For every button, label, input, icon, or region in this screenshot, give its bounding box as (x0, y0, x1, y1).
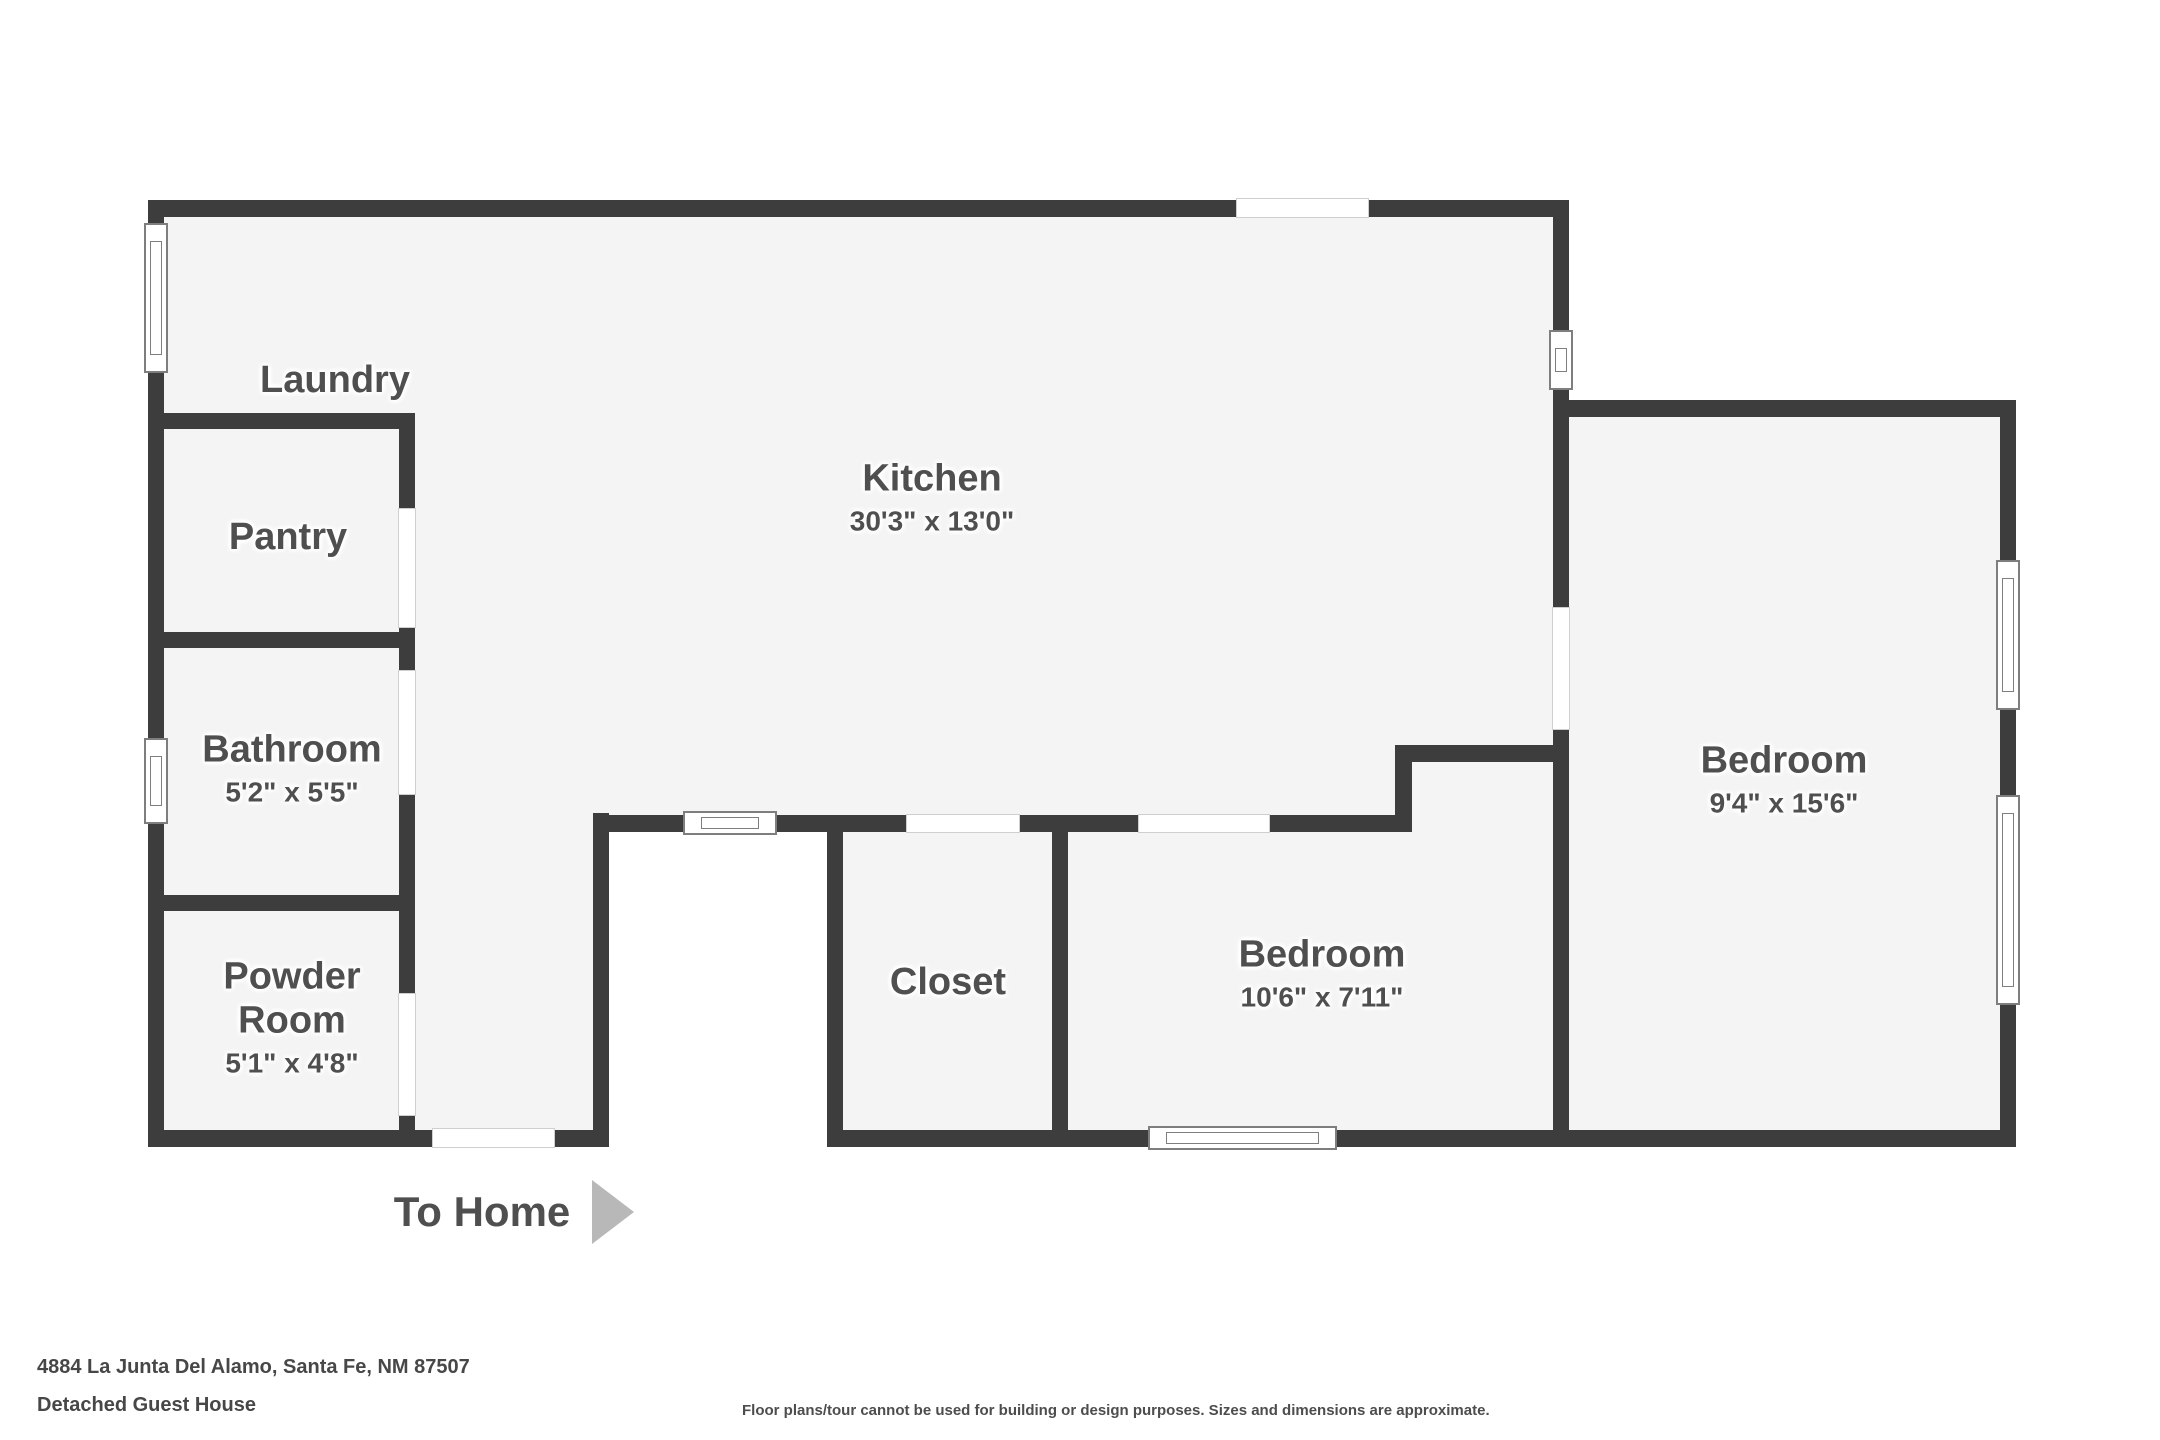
room-label-bedroom-right: Bedroom 9'4" x 15'6" (1701, 738, 1868, 819)
wall-bottom-left-segment (148, 1130, 432, 1147)
door-bathroom (398, 670, 416, 795)
room-label-powder-room: Powder Room 5'1" x 4'8" (187, 954, 397, 1079)
room-name: Bathroom (202, 727, 381, 771)
wall-bedroom-right-east-3 (2000, 1005, 2016, 1147)
wall-bathroom-powder (148, 895, 415, 911)
room-label-closet: Closet (890, 960, 1006, 1004)
window-glass (150, 241, 161, 355)
wall-closet-left (827, 815, 843, 1147)
room-name: Closet (890, 960, 1006, 1004)
room-label-pantry: Pantry (229, 515, 347, 559)
window-porch (683, 811, 777, 835)
wall-porch-top-1 (593, 815, 683, 832)
wall-closet-bedroom (1052, 815, 1068, 1130)
room-name: Bedroom (1701, 738, 1868, 782)
door-closet (906, 814, 1020, 833)
room-dimensions: 30'3" x 13'0" (850, 506, 1014, 538)
room-name: Laundry (260, 358, 410, 402)
room-dimensions: 5'1" x 4'8" (187, 1048, 397, 1080)
wall-bottom-closet-segment (827, 1130, 1148, 1147)
window-glass (1166, 1132, 1319, 1143)
window-bedroom-right-2 (1996, 795, 2020, 1005)
to-home-label: To Home (394, 1188, 571, 1236)
window-kitchen-right (1549, 330, 1573, 390)
wall-bedroom-right-east-1 (2000, 400, 2016, 560)
wall-bottom-right-segment (1337, 1130, 2016, 1147)
wall-closet-top (1020, 815, 1138, 832)
room-label-bathroom: Bathroom 5'2" x 5'5" (202, 727, 381, 808)
wall-column-right-3 (399, 795, 415, 993)
wall-kitchen-right-1 (1553, 200, 1569, 330)
room-name: Bedroom (1239, 932, 1406, 976)
wall-pantry-bathroom (148, 632, 415, 648)
footer-subtitle: Detached Guest House (37, 1394, 256, 1417)
room-label-laundry: Laundry (260, 358, 410, 402)
door-powder-room (398, 993, 416, 1116)
wall-step-horizontal (1395, 745, 1569, 762)
wall-column-right-1 (399, 413, 415, 508)
door-top-entry (1236, 198, 1369, 218)
door-kitchen-to-bedroom (1552, 607, 1570, 730)
window-bathroom (144, 738, 168, 824)
window-bedroom-right-1 (1996, 560, 2020, 710)
wall-column-right-4 (399, 1116, 415, 1147)
wall-bedroom-right-east-2 (2000, 710, 2016, 795)
room-label-bedroom-middle: Bedroom 10'6" x 7'11" (1239, 932, 1406, 1013)
wall-kitchen-right-2 (1553, 390, 1569, 607)
footer-disclaimer: Floor plans/tour cannot be used for buil… (742, 1402, 1490, 1419)
room-dimensions: 10'6" x 7'11" (1239, 982, 1406, 1014)
right-arrow-icon (592, 1180, 634, 1244)
window-bedroom-middle (1148, 1126, 1337, 1150)
window-glass (701, 817, 759, 828)
room-dimensions: 5'2" x 5'5" (202, 777, 381, 809)
wall-bedroom-middle-top (1270, 815, 1412, 832)
room-name: Powder Room (187, 954, 397, 1042)
door-bedroom-middle (1138, 814, 1270, 833)
room-dimensions: 9'4" x 15'6" (1701, 788, 1868, 820)
room-name: Kitchen (850, 456, 1014, 500)
window-glass (150, 756, 161, 806)
window-glass (1555, 348, 1566, 372)
wall-laundry-pantry (148, 413, 415, 429)
window-laundry (144, 223, 168, 373)
wall-bedroom-divider (1553, 730, 1569, 1147)
floorplan-canvas: Laundry Pantry Bathroom 5'2" x 5'5" Powd… (0, 0, 2160, 1440)
window-glass (2002, 813, 2013, 987)
wall-top-left-segment (148, 200, 1236, 217)
door-pantry (398, 508, 416, 628)
floor-hallway (415, 815, 609, 1130)
wall-top-right-segment (1369, 200, 1568, 217)
window-glass (2002, 578, 2013, 692)
room-name: Pantry (229, 515, 347, 559)
wall-hall-right (593, 813, 609, 1147)
room-label-kitchen: Kitchen 30'3" x 13'0" (850, 456, 1014, 537)
door-exit-to-home (432, 1128, 555, 1148)
wall-bedroom-right-top (1553, 400, 2016, 417)
wall-column-right-2 (399, 628, 415, 670)
footer-address: 4884 La Junta Del Alamo, Santa Fe, NM 87… (37, 1356, 470, 1379)
